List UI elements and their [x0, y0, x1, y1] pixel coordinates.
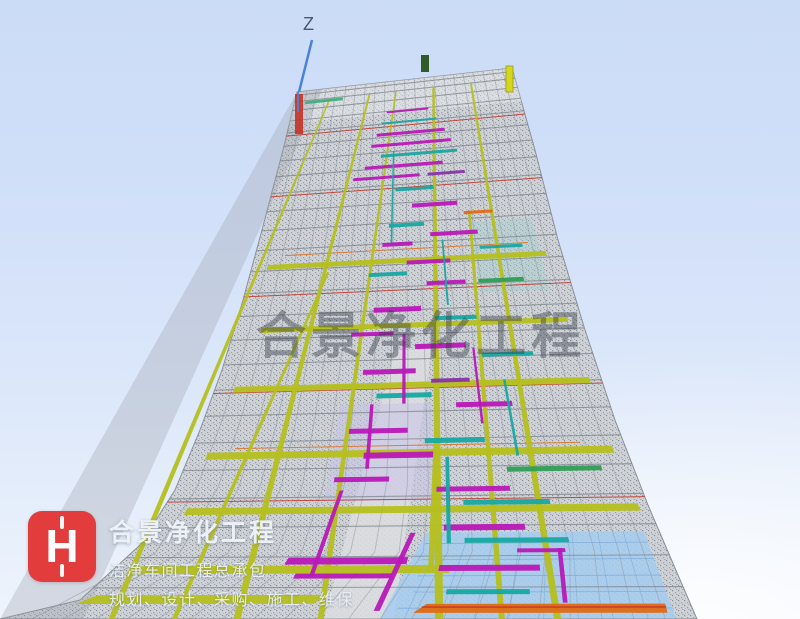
z-axis-label: Z — [303, 14, 314, 34]
watermark-text: 合景净化工程 — [256, 308, 586, 364]
logo-slit-bottom — [60, 564, 64, 577]
company-brand-text: 合景净化工程 洁净车间工程总承包 规划、设计、采购、施工、维保 — [109, 511, 354, 615]
logo-h-icon: H — [45, 523, 78, 569]
viewport: Z 合景净化工程 H 合景净化工程 洁净车间工程总承包 规划、设计、采购、施工、… — [0, 0, 800, 619]
company-logo: H — [28, 511, 96, 582]
company-tagline-2: 规划、设计、采购、施工、维保 — [109, 586, 354, 610]
company-name: 合景净化工程 — [109, 513, 354, 549]
z-axis-line — [299, 40, 312, 92]
company-brand: H 合景净化工程 洁净车间工程总承包 规划、设计、采购、施工、维保 — [28, 511, 354, 615]
logo-slit-top — [60, 516, 64, 529]
company-tagline-1: 洁净车间工程总承包 — [109, 557, 354, 581]
z-axis-gizmo: Z — [299, 14, 314, 92]
